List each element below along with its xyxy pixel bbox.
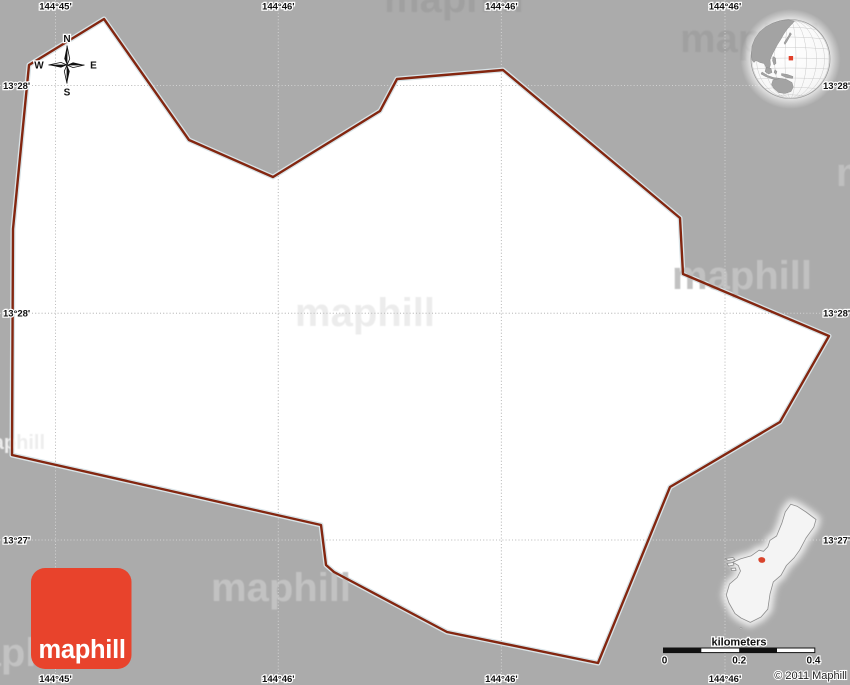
svg-text:144°46': 144°46'	[485, 674, 517, 685]
svg-text:13°27': 13°27'	[3, 536, 30, 547]
svg-text:0: 0	[662, 656, 668, 667]
svg-text:144°46': 144°46'	[262, 674, 294, 685]
svg-text:kilometers: kilometers	[711, 637, 766, 649]
svg-text:144°46': 144°46'	[262, 2, 294, 13]
svg-text:144°46': 144°46'	[709, 674, 741, 685]
svg-text:13°28': 13°28'	[823, 309, 850, 320]
svg-text:144°45': 144°45'	[39, 2, 71, 13]
svg-text:maphill: maphill	[39, 636, 126, 664]
svg-text:144°46': 144°46'	[709, 2, 741, 13]
svg-text:13°28': 13°28'	[3, 81, 30, 92]
svg-text:13°27': 13°27'	[823, 536, 850, 547]
svg-text:13°28': 13°28'	[823, 81, 850, 92]
svg-text:W: W	[34, 61, 44, 72]
svg-text:13°28': 13°28'	[3, 309, 30, 320]
svg-text:S: S	[64, 88, 71, 99]
svg-text:maphill: maphill	[211, 566, 351, 610]
svg-text:maphill: maphill	[0, 432, 45, 454]
svg-text:© 2011 Maphill: © 2011 Maphill	[774, 670, 847, 682]
svg-text:maphill: maphill	[672, 254, 812, 298]
svg-text:0.4: 0.4	[807, 656, 821, 667]
svg-text:144°45': 144°45'	[39, 674, 71, 685]
svg-text:E: E	[90, 60, 97, 71]
svg-text:N: N	[63, 34, 70, 45]
svg-text:0.2: 0.2	[732, 656, 746, 667]
svg-text:144°46': 144°46'	[485, 2, 517, 13]
svg-text:maphill: maphill	[836, 151, 850, 195]
